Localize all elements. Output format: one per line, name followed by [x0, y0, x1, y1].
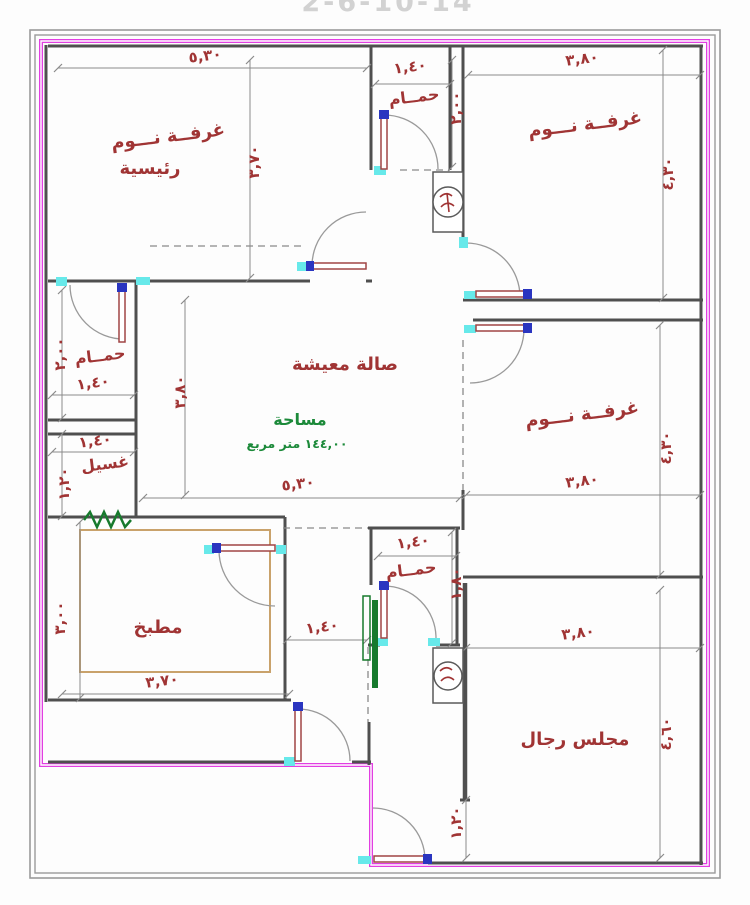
- dim-living-width: ٥,٣٠: [281, 474, 316, 494]
- dim-laundry-height: ١,٢٠: [56, 467, 73, 500]
- duct-shaft-top: [433, 172, 463, 232]
- area-label: مساحة: [273, 411, 326, 429]
- room-label-kitchen: مطبخ: [134, 618, 183, 638]
- dim-bedroom-right-height: ٤,٣٠: [658, 431, 675, 464]
- dim-bath-top-height: ٢,٠٠: [448, 91, 465, 124]
- wall-break-icon: [84, 512, 131, 527]
- door-handle-markers: [117, 110, 532, 864]
- floor-plan: 2-6-10-14: [0, 0, 750, 905]
- room-label-living: صالة معيشة: [292, 355, 398, 375]
- duct-shaft-bottom: [433, 648, 463, 703]
- dim-master-height: ٣,٧٠: [246, 145, 263, 178]
- room-label-majlis: مجلس رجال: [521, 730, 630, 750]
- dim-kitchen-height: ٣,٠٠: [52, 601, 69, 634]
- dim-laundry-width: ١,٤٠: [78, 431, 113, 451]
- area-value: ١٤٤,٠٠ متر مربع: [247, 437, 348, 451]
- dim-majlis-width: ٣,٨٠: [561, 623, 596, 643]
- dim-kitchen-width: ٣,٧٠: [145, 671, 180, 691]
- dim-entrance-width: ١,٢٠: [448, 806, 465, 839]
- dim-bath-middle-width: ١,٤٠: [396, 532, 431, 552]
- dim-bedroom-right-width: ٣,٨٠: [565, 471, 600, 491]
- dim-bath-top-width: ١,٤٠: [393, 57, 428, 77]
- dim-living-height: ٣,٨٠: [172, 375, 189, 408]
- dim-bath-left-height: ٢,٠٠: [52, 337, 69, 370]
- dim-bedroom-top-right-width: ٣,٨٠: [565, 49, 600, 69]
- dim-bath-middle-height: ١,٨٠: [448, 567, 465, 600]
- dim-bath-left-width: ١,٤٠: [76, 373, 111, 393]
- dim-majlis-height: ٤,٦٠: [658, 717, 675, 750]
- dim-bedroom-top-right-height: ٤,٣٠: [660, 157, 677, 190]
- dim-master-width: ٥,٣٠: [188, 46, 223, 66]
- room-label-master-bedroom-line2: رئيسية: [119, 159, 180, 179]
- dim-hallway-width: ١,٤٠: [305, 617, 340, 637]
